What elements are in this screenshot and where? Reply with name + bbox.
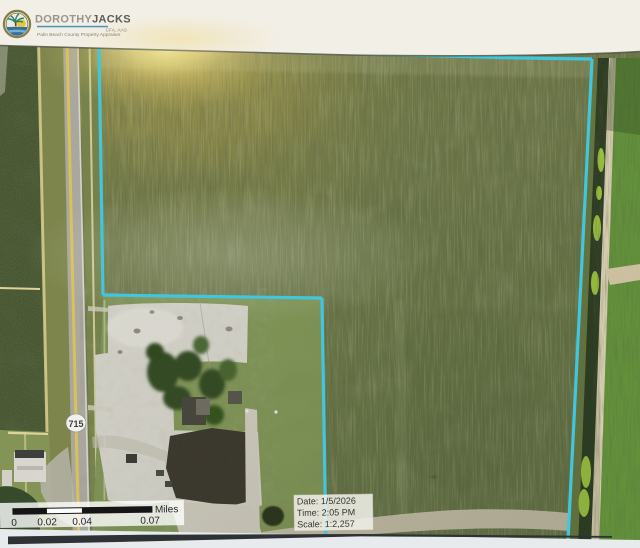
svg-text:Palm Beach County Property App: Palm Beach County Property Appraiser (37, 32, 121, 38)
svg-text:DOROTHYJACKS: DOROTHYJACKS (35, 13, 131, 25)
